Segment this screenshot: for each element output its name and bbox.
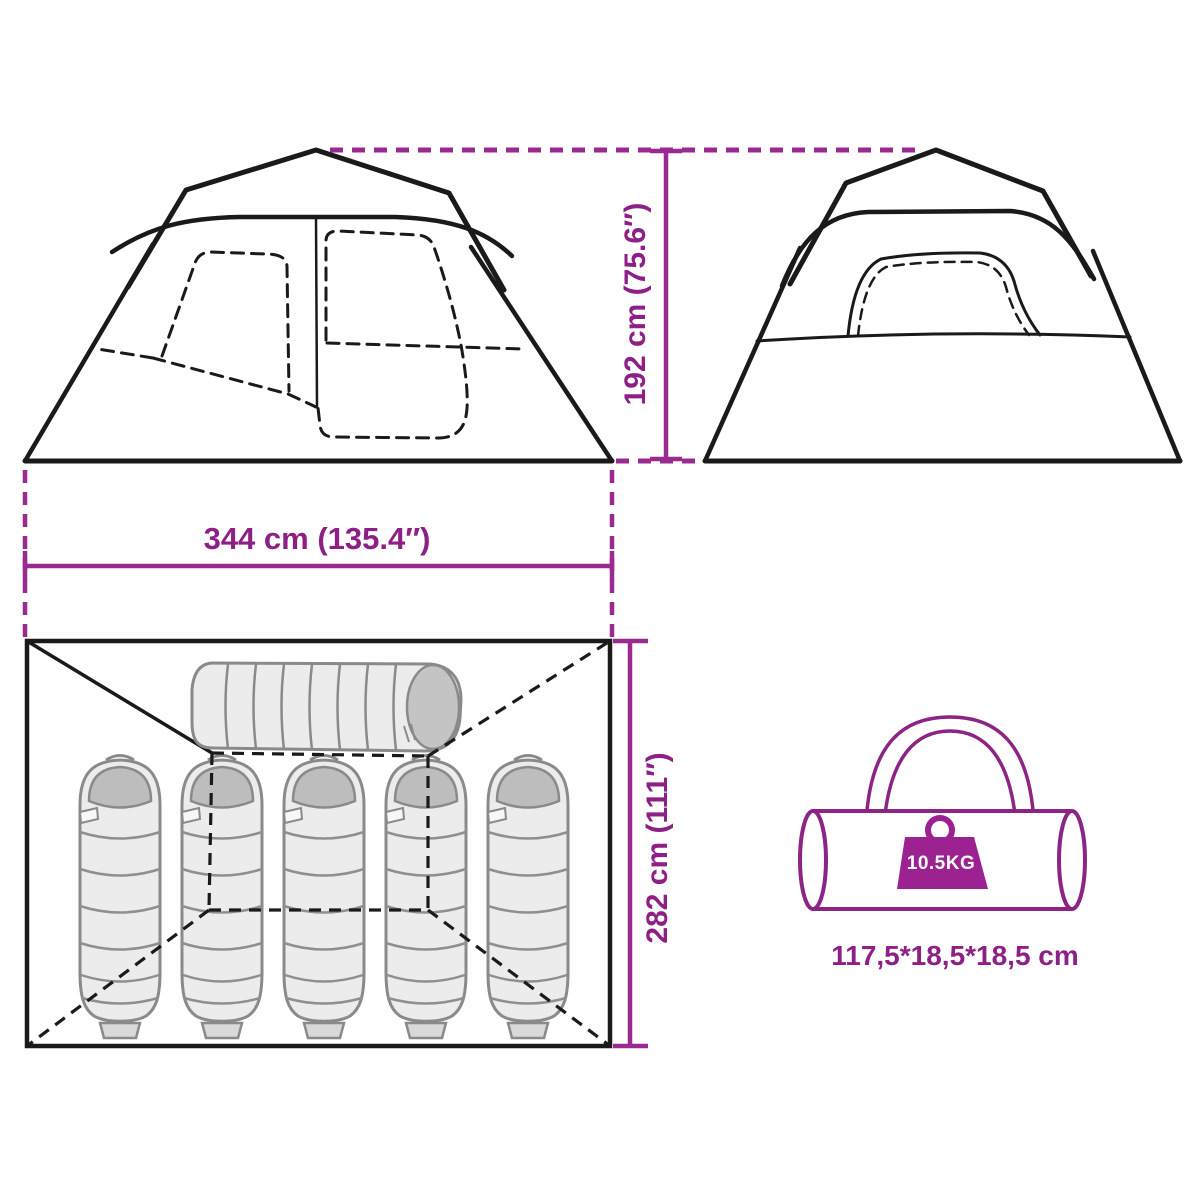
sleeping-bag-vertical-3 — [284, 756, 364, 1039]
side-window-dashed-inner — [858, 262, 1029, 336]
sleeping-bag-horizontal — [192, 663, 461, 751]
product-dimension-diagram: 344 cm (135.4″) 192 cm (75.6″) 282 cm (1… — [0, 0, 1200, 1200]
sleeping-bag-vertical-2 — [182, 756, 262, 1039]
side-window-outline — [848, 253, 1040, 336]
sleeping-bag-vertical-4 — [386, 756, 466, 1039]
front-view-drawing — [25, 150, 612, 461]
diagram-artwork — [0, 0, 1200, 1200]
width-dimension-label: 344 cm (135.4″) — [177, 522, 457, 556]
side-view-drawing — [705, 150, 1180, 461]
carry-bag-size-label: 117,5*18,5*18,5 cm — [795, 941, 1115, 972]
front-door-dashed-outline — [318, 231, 523, 438]
carry-bag-drawing — [800, 717, 1085, 909]
depth-dimension-label: 282 cm (111″) — [641, 728, 675, 968]
height-dimension-label: 192 cm (75.6″) — [619, 184, 653, 424]
front-window-dashed-outline — [98, 252, 316, 407]
carry-bag-handle — [866, 717, 1034, 824]
sleeping-bag-vertical-5 — [488, 756, 568, 1039]
floor-plan-drawing — [27, 641, 610, 1046]
weight-label: 10.5KG — [881, 854, 1001, 875]
